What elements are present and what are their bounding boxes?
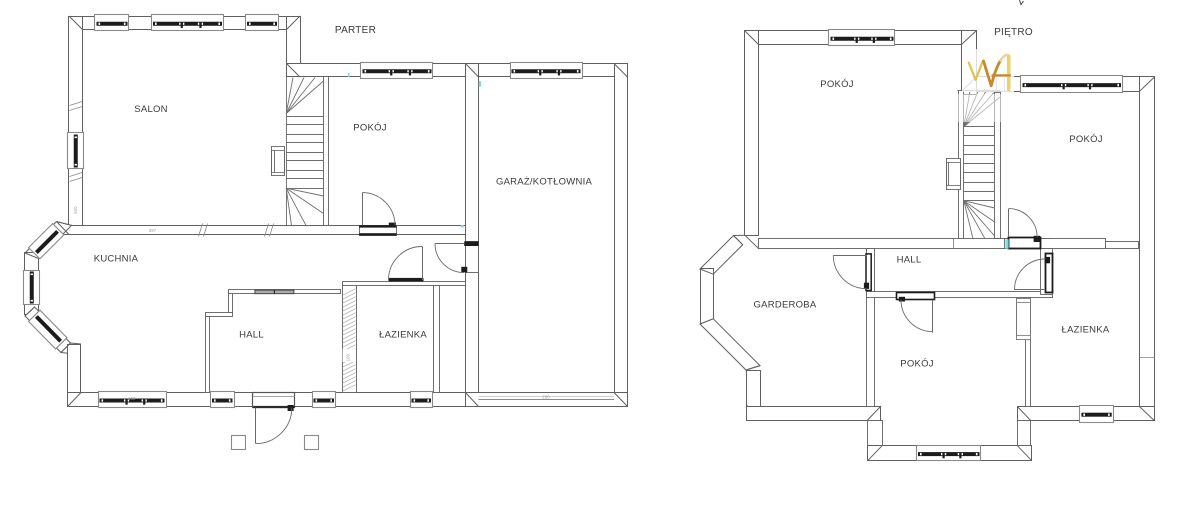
svg-text:HALL: HALL xyxy=(239,330,264,341)
svg-text:PARTER: PARTER xyxy=(335,25,376,36)
svg-text:397: 397 xyxy=(149,228,157,233)
svg-text:180: 180 xyxy=(346,353,351,361)
svg-text:500: 500 xyxy=(73,206,78,214)
svg-text:ŁAZIENKA: ŁAZIENKA xyxy=(379,330,427,341)
svg-text:POKÓJ: POKÓJ xyxy=(900,359,933,370)
svg-text:SALON: SALON xyxy=(134,104,167,115)
svg-text:POKÓJ: POKÓJ xyxy=(353,123,386,134)
svg-text:ŁAZIENKA: ŁAZIENKA xyxy=(1062,325,1110,336)
svg-text:GARAŻ/KOTŁOWNIA: GARAŻ/KOTŁOWNIA xyxy=(496,177,593,188)
svg-text:GARDEROBA: GARDEROBA xyxy=(754,300,817,311)
svg-text:HALL: HALL xyxy=(897,255,922,266)
svg-text:POKÓJ: POKÓJ xyxy=(820,79,853,90)
svg-text:250: 250 xyxy=(542,395,550,400)
svg-text:POKÓJ: POKÓJ xyxy=(1069,134,1102,145)
svg-text:PIĘTRO: PIĘTRO xyxy=(994,27,1033,38)
svg-text:KUCHNIA: KUCHNIA xyxy=(94,254,139,265)
svg-text:160: 160 xyxy=(128,396,136,401)
